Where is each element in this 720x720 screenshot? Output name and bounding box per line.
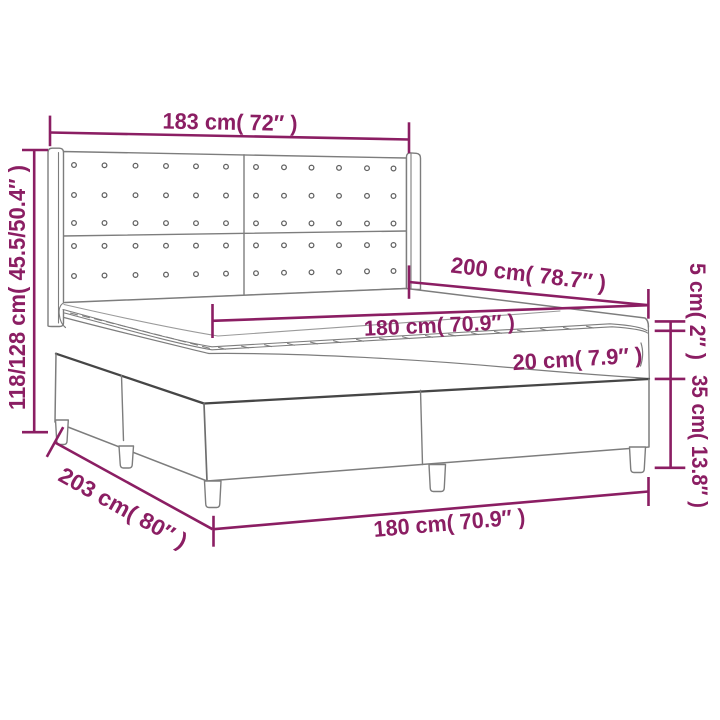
svg-text:5 cm( 2″ ): 5 cm( 2″ ) — [685, 263, 710, 360]
svg-text:183 cm( 72″ ): 183 cm( 72″ ) — [162, 108, 297, 136]
svg-text:118/128 cm( 45.5/50.4″ ): 118/128 cm( 45.5/50.4″ ) — [4, 165, 30, 410]
svg-text:35 cm( 13.8″ ): 35 cm( 13.8″ ) — [687, 375, 712, 508]
